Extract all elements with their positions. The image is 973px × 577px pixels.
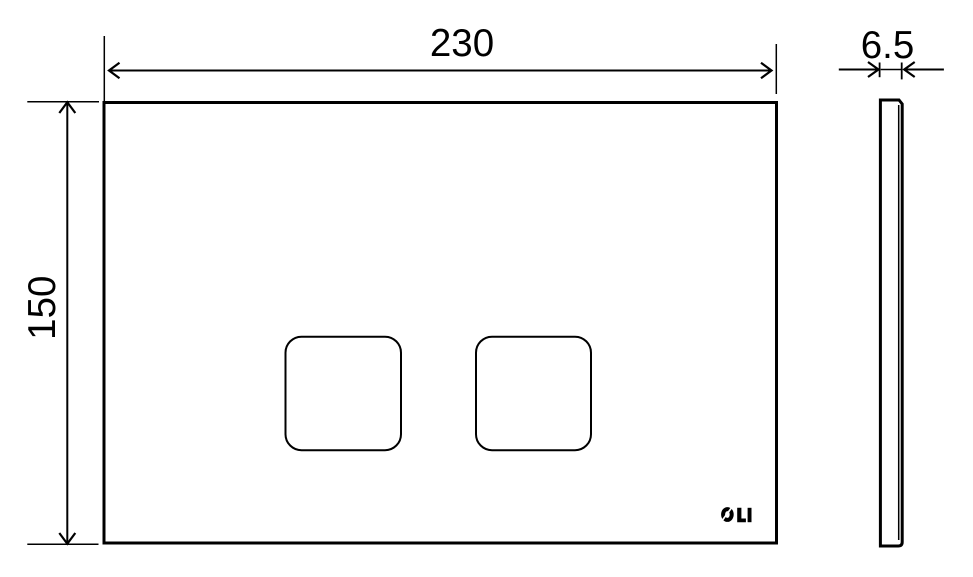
svg-text:150: 150	[21, 276, 64, 340]
svg-text:6.5: 6.5	[861, 24, 915, 67]
svg-text:230: 230	[430, 22, 494, 65]
